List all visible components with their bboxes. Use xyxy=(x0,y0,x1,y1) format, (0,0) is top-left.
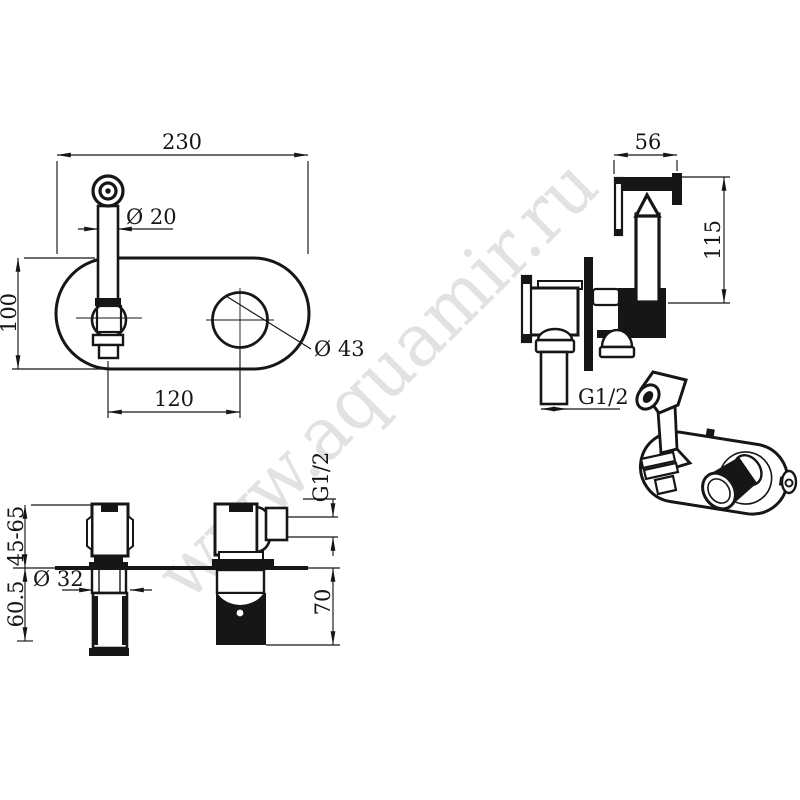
technical-drawing-page: www.aquamir.ru 230 xyxy=(0,0,800,800)
front-spout-diameter-dim: Ø 20 xyxy=(126,205,177,229)
top-spout-assembly xyxy=(87,504,133,656)
front-height-dim: 100 xyxy=(0,293,21,333)
side-holder-height-dim: 115 xyxy=(701,220,725,260)
wall-escutcheon-edge xyxy=(584,257,593,371)
top-thread-dim: G1/2 xyxy=(309,452,333,503)
side-thread-dim: G1/2 xyxy=(578,385,629,409)
shower-head-bar xyxy=(622,177,679,191)
spout-head-dot xyxy=(105,188,110,193)
top-drop-dim: 70 xyxy=(311,589,335,616)
spout-tube xyxy=(98,206,118,300)
side-holder-width-dim: 56 xyxy=(635,130,662,154)
technical-drawing-canvas: www.aquamir.ru 230 xyxy=(0,0,800,800)
shower-handle xyxy=(636,214,659,302)
top-depth-range-dim: 45-65 xyxy=(4,506,28,567)
iso-hose-hook xyxy=(782,471,796,493)
inlet-pipe xyxy=(541,352,567,404)
side-hand-shower xyxy=(615,173,682,302)
valve-end-cap xyxy=(266,508,287,540)
front-width-dim: 230 xyxy=(162,130,202,154)
iso-view xyxy=(632,372,796,519)
top-depth-dim: 60.5 xyxy=(4,581,28,628)
front-knob-diameter-dim: Ø 43 xyxy=(314,337,365,361)
top-valve-assembly xyxy=(212,504,287,645)
front-view: 230 Ø 20 100 120 Ø 43 xyxy=(0,130,365,418)
top-valve-diameter-dim: Ø 32 xyxy=(33,567,84,591)
spout-cylinder xyxy=(93,593,127,648)
front-centers-dim: 120 xyxy=(154,387,194,411)
